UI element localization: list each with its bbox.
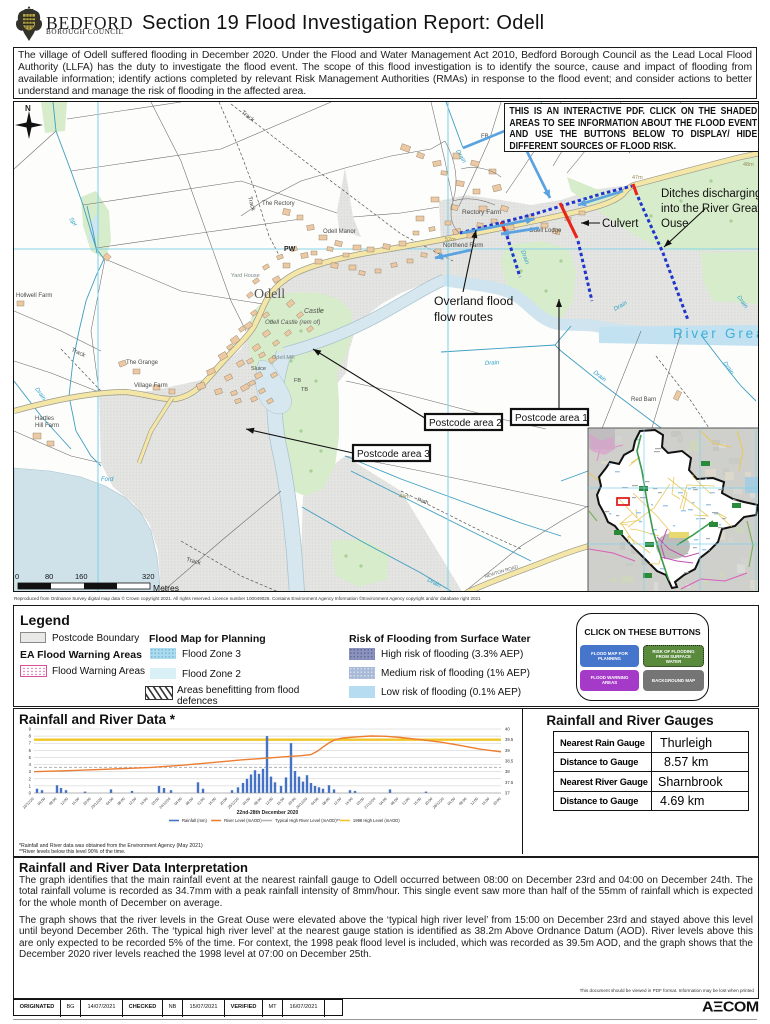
svg-text:12:00: 12:00 bbox=[470, 797, 479, 806]
svg-text:Castle: Castle bbox=[304, 308, 324, 315]
svg-text:Hollwell Farm: Hollwell Farm bbox=[16, 293, 52, 299]
svg-text:39.5: 39.5 bbox=[505, 737, 514, 742]
svg-text:Hartles: Hartles bbox=[35, 416, 54, 422]
svg-text:Ditches discharging: Ditches discharging bbox=[661, 188, 758, 200]
svg-text:12:00: 12:00 bbox=[196, 797, 205, 806]
svg-text:08:00: 08:00 bbox=[390, 797, 399, 806]
svg-text:12:00: 12:00 bbox=[60, 797, 69, 806]
svg-text:Typical High River Level (mAOD: Typical High River Level (mAOD)** bbox=[275, 818, 340, 823]
svg-text:80: 80 bbox=[45, 572, 53, 581]
svg-text:38.5: 38.5 bbox=[505, 759, 514, 764]
svg-text:Ouse: Ouse bbox=[661, 218, 689, 230]
svg-text:Hill Farm: Hill Farm bbox=[35, 423, 59, 429]
svg-text:16:00: 16:00 bbox=[71, 797, 80, 806]
svg-text:River Level (mAOD): River Level (mAOD) bbox=[224, 818, 262, 823]
svg-text:Ford: Ford bbox=[101, 477, 114, 483]
svg-text:16:00: 16:00 bbox=[208, 797, 217, 806]
svg-text:1: 1 bbox=[29, 783, 32, 788]
svg-text:6: 6 bbox=[29, 748, 32, 753]
svg-text:Red Barn: Red Barn bbox=[631, 397, 656, 403]
svg-text:28/12/20: 28/12/20 bbox=[432, 797, 445, 810]
svg-text:12:00: 12:00 bbox=[333, 797, 342, 806]
svg-text:Rainfall (mm): Rainfall (mm) bbox=[182, 818, 207, 823]
svg-text:Postcode area 1: Postcode area 1 bbox=[515, 413, 588, 424]
svg-text:16:00: 16:00 bbox=[276, 797, 285, 806]
svg-text:Odell Manor: Odell Manor bbox=[323, 229, 356, 235]
svg-text:Sluice: Sluice bbox=[251, 366, 266, 372]
svg-text:FB: FB bbox=[294, 378, 301, 384]
svg-text:27/12/20: 27/12/20 bbox=[364, 797, 377, 810]
svg-text:26/12/20: 26/12/20 bbox=[295, 797, 308, 810]
svg-text:4: 4 bbox=[29, 762, 32, 767]
svg-text:into the River Great: into the River Great bbox=[661, 203, 758, 215]
svg-text:20:00: 20:00 bbox=[424, 797, 433, 806]
svg-text:Odell Mill: Odell Mill bbox=[272, 355, 295, 361]
svg-text:08:00: 08:00 bbox=[322, 797, 331, 806]
svg-text:Metres: Metres bbox=[153, 583, 179, 591]
svg-text:22nd-28th December 2020: 22nd-28th December 2020 bbox=[237, 810, 299, 816]
svg-text:flow routes: flow routes bbox=[434, 310, 493, 324]
svg-text:Odell: Odell bbox=[254, 287, 285, 302]
svg-text:40: 40 bbox=[505, 727, 510, 732]
svg-text:20:00: 20:00 bbox=[219, 797, 228, 806]
svg-text:04:00: 04:00 bbox=[447, 797, 456, 806]
svg-text:Overland flood: Overland flood bbox=[434, 294, 513, 308]
svg-text:The Rectory: The Rectory bbox=[262, 201, 295, 207]
svg-text:16:00: 16:00 bbox=[139, 797, 148, 806]
svg-text:04:00: 04:00 bbox=[37, 797, 46, 806]
svg-text:7: 7 bbox=[29, 741, 32, 746]
svg-text:Postcode area 3: Postcode area 3 bbox=[357, 449, 430, 460]
svg-text:04:00: 04:00 bbox=[379, 797, 388, 806]
svg-text:22/12/20: 22/12/20 bbox=[22, 797, 35, 810]
svg-text:16:00: 16:00 bbox=[344, 797, 353, 806]
svg-text:23/12/20: 23/12/20 bbox=[90, 797, 103, 810]
svg-text:5: 5 bbox=[29, 755, 32, 760]
svg-text:08:00: 08:00 bbox=[458, 797, 467, 806]
svg-text:38: 38 bbox=[505, 769, 510, 774]
svg-text:Northend Farm: Northend Farm bbox=[443, 243, 483, 249]
svg-text:Postcode area 2: Postcode area 2 bbox=[429, 418, 502, 429]
svg-text:08:00: 08:00 bbox=[253, 797, 262, 806]
svg-text:25/12/20: 25/12/20 bbox=[227, 797, 240, 810]
svg-text:9: 9 bbox=[29, 727, 32, 732]
svg-text:Odell Castle (rem of): Odell Castle (rem of) bbox=[265, 320, 320, 326]
svg-text:20:00: 20:00 bbox=[356, 797, 365, 806]
svg-text:320: 320 bbox=[142, 572, 155, 581]
svg-text:08:00: 08:00 bbox=[48, 797, 57, 806]
svg-text:1998 High Level (mAOD): 1998 High Level (mAOD) bbox=[353, 818, 400, 823]
svg-text:20:00: 20:00 bbox=[151, 797, 160, 806]
svg-text:16:00: 16:00 bbox=[413, 797, 422, 806]
svg-text:8: 8 bbox=[29, 734, 32, 739]
svg-text:Yard House: Yard House bbox=[231, 273, 260, 279]
svg-text:04:00: 04:00 bbox=[242, 797, 251, 806]
svg-text:20:00: 20:00 bbox=[493, 797, 502, 806]
svg-text:Rectory Farm: Rectory Farm bbox=[462, 209, 501, 216]
svg-text:The Grange: The Grange bbox=[126, 360, 159, 366]
svg-text:PW: PW bbox=[284, 246, 296, 253]
svg-text:08:00: 08:00 bbox=[185, 797, 194, 806]
svg-text:N: N bbox=[25, 104, 31, 113]
svg-text:0: 0 bbox=[29, 791, 32, 796]
svg-text:04:00: 04:00 bbox=[310, 797, 319, 806]
svg-text:44m: 44m bbox=[399, 494, 410, 500]
svg-text:Culvert: Culvert bbox=[602, 218, 639, 230]
svg-text:47m: 47m bbox=[632, 175, 643, 181]
svg-text:2: 2 bbox=[29, 776, 32, 781]
svg-text:37: 37 bbox=[505, 791, 510, 796]
svg-text:48m: 48m bbox=[743, 162, 754, 168]
svg-text:Drain: Drain bbox=[485, 360, 500, 367]
svg-text:160: 160 bbox=[75, 572, 88, 581]
svg-text:River Great: River Great bbox=[673, 326, 758, 341]
svg-text:12:00: 12:00 bbox=[265, 797, 274, 806]
svg-text:12:00: 12:00 bbox=[401, 797, 410, 806]
svg-text:0: 0 bbox=[15, 572, 19, 581]
svg-text:3: 3 bbox=[29, 769, 32, 774]
svg-text:39: 39 bbox=[505, 748, 510, 753]
svg-text:12:00: 12:00 bbox=[128, 797, 137, 806]
svg-text:16:00: 16:00 bbox=[481, 797, 490, 806]
svg-text:TB: TB bbox=[301, 387, 308, 393]
svg-text:20:00: 20:00 bbox=[288, 797, 297, 806]
svg-text:52m: 52m bbox=[445, 237, 456, 243]
svg-text:37.5: 37.5 bbox=[505, 780, 514, 785]
svg-text:04:00: 04:00 bbox=[105, 797, 114, 806]
svg-text:04:00: 04:00 bbox=[174, 797, 183, 806]
svg-text:08:00: 08:00 bbox=[117, 797, 126, 806]
svg-text:Village Farm: Village Farm bbox=[134, 383, 168, 389]
svg-text:20:00: 20:00 bbox=[83, 797, 92, 806]
svg-text:24/12/20: 24/12/20 bbox=[159, 797, 172, 810]
